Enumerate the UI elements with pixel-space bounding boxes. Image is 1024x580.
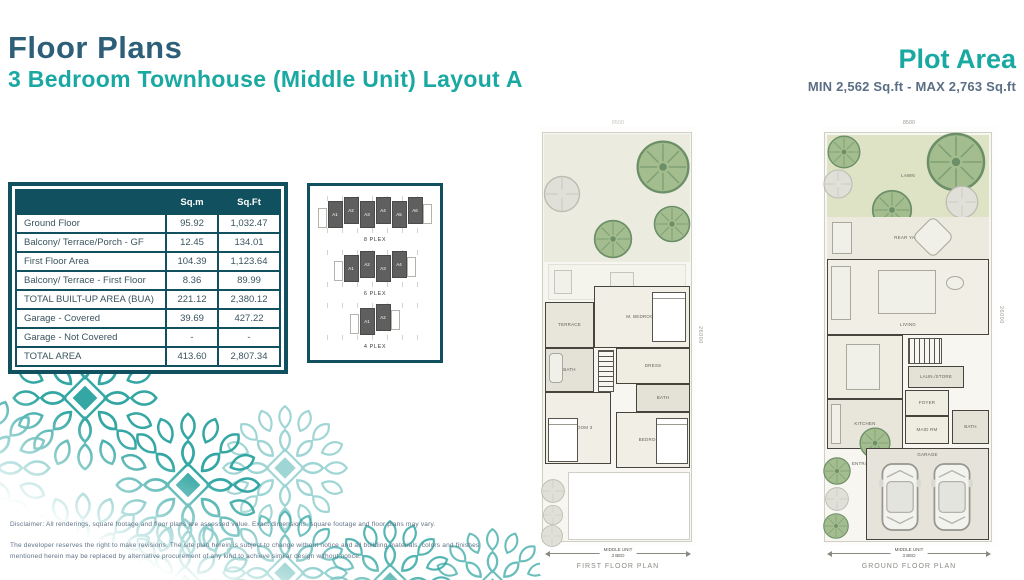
area-label-cell: First Floor Area	[16, 252, 166, 271]
area-value-cell: 104.39	[166, 252, 218, 271]
plex-row: A1A2A3A4A5A6	[318, 201, 432, 228]
area-label-cell: Garage - Covered	[16, 309, 166, 328]
page-title: Floor Plans	[8, 30, 182, 66]
room-terrace: TERRACE	[545, 302, 594, 348]
plot-area-range: MIN 2,562 Sq.ft - MAX 2,763 Sq.ft	[808, 79, 1016, 94]
plex-unit-cell: A1	[344, 255, 359, 282]
area-value-cell: 1,032.47	[218, 214, 280, 233]
outdoor-sofa-icon	[832, 222, 852, 254]
shrub-icon	[824, 486, 850, 512]
room-label: LAWN	[901, 173, 915, 179]
area-table: Sq.m Sq.Ft Ground Floor95.921,032.47Balc…	[8, 182, 288, 374]
room-maid: MAID RM	[905, 416, 949, 444]
plex-end-unit	[391, 310, 400, 330]
table-row: TOTAL AREA413.602,807.34	[16, 347, 280, 366]
area-label-cell: Ground Floor	[16, 214, 166, 233]
plex-unit-cell: A6	[408, 197, 423, 224]
plex-unit-cell: A2	[376, 304, 391, 331]
area-label-cell: TOTAL BUILT-UP AREA (BUA)	[16, 290, 166, 309]
table-row: Garage - Covered39.69427.22	[16, 309, 280, 328]
area-value-cell: 427.22	[218, 309, 280, 328]
area-label-cell: Balcony/ Terrace - First Floor	[16, 271, 166, 290]
plex-gridline	[327, 282, 423, 287]
shrub-icon	[542, 504, 564, 526]
side-table-icon	[946, 276, 964, 290]
plex-unit-cell: A2	[344, 197, 359, 224]
area-label-cell: Balcony/ Terrace/Porch - GF	[16, 233, 166, 252]
area-table-header-sqm: Sq.m	[166, 190, 218, 214]
area-value-cell: 221.12	[166, 290, 218, 309]
room-label: GARAGE	[917, 452, 937, 458]
area-table-header-empty	[16, 190, 166, 214]
area-value-cell: 12.45	[166, 233, 218, 252]
ground-floor-height-dim: 26000	[998, 306, 1004, 324]
bed-icon	[652, 292, 686, 342]
area-value-cell: 8.36	[166, 271, 218, 290]
first-floor-dim-line: MIDDLE UNIT 3 BED	[546, 553, 690, 554]
room-bath2: BATH	[636, 384, 690, 412]
tree-icon	[634, 138, 692, 196]
stairs-icon	[598, 350, 614, 392]
table-row: TOTAL BUILT-UP AREA (BUA)221.122,380.12	[16, 290, 280, 309]
shrub-icon	[822, 456, 852, 486]
first-floor-canvas: TERRACE M. BEDROOM BATH DRESS BATH BEDRO…	[540, 126, 696, 546]
plex-gridline	[327, 335, 423, 340]
area-value-cell: 95.92	[166, 214, 218, 233]
plex-group-4: A1A2 4 PLEX	[327, 303, 423, 350]
tree-icon	[592, 218, 634, 260]
plex-unit-cell: A3	[376, 255, 391, 282]
plex-end-unit	[334, 261, 343, 281]
area-table-header-row: Sq.m Sq.Ft	[16, 190, 280, 214]
plex-unit-cell: A3	[360, 201, 375, 228]
shrub-icon	[540, 478, 566, 504]
table-row: First Floor Area104.391,123.64	[16, 252, 280, 271]
tree-gray-icon	[944, 184, 980, 220]
sofa-icon	[831, 266, 851, 320]
plex-unit-cell: A1	[360, 308, 375, 335]
plex-label-4: 4 PLEX	[364, 344, 386, 350]
tree-icon	[652, 204, 692, 244]
plex-row: A1A2	[350, 308, 400, 335]
plex-unit-cell: A4	[392, 251, 407, 278]
plex-gridline	[327, 228, 423, 233]
area-value-cell: 134.01	[218, 233, 280, 252]
plex-group-8: A1A2A3A4A5A6 8 PLEX	[318, 196, 432, 243]
first-floor-plan-name: FIRST FLOOR PLAN	[540, 563, 696, 570]
area-label-cell: Garage - Not Covered	[16, 328, 166, 347]
disclaimer-line2: The developer reserves the right to make…	[10, 542, 530, 549]
dining-table-icon	[846, 344, 880, 390]
first-floor-plan: 8500 TERRACE M. BEDROOM BATH	[540, 120, 696, 575]
bed-icon	[548, 418, 578, 462]
shrub-icon	[540, 524, 564, 548]
kitchen-counter-icon	[831, 404, 841, 444]
room-label: MAID RM	[917, 427, 938, 433]
plex-units: A1A2A3A4	[343, 255, 407, 282]
furniture	[554, 270, 572, 294]
page-subtitle: 3 Bedroom Townhouse (Middle Unit) Layout…	[8, 66, 523, 93]
ground-floor-plan-name: GROUND FLOOR PLAN	[822, 563, 996, 570]
shrub-icon	[822, 512, 850, 540]
area-value-cell: -	[166, 328, 218, 347]
unit-caption: MIDDLE UNIT 3 BED	[891, 547, 928, 560]
table-row: Balcony/ Terrace/Porch - GF12.45134.01	[16, 233, 280, 252]
plex-group-6: A1A2A3A4 6 PLEX	[327, 250, 423, 297]
bed-label: 3 BED	[895, 553, 924, 559]
room-laundry: LAUN./STORE	[908, 366, 964, 388]
room-dress: DRESS	[616, 348, 690, 384]
ground-floor-dim-line: MIDDLE UNIT 3 BED	[828, 553, 990, 554]
plex-row: A1A2A3A4	[334, 255, 416, 282]
plex-unit-cell: A4	[376, 197, 391, 224]
area-value-cell: 413.60	[166, 347, 218, 366]
ground-floor-canvas: LAWN REAR YARD LIVING DINING	[822, 126, 996, 546]
bathtub-icon	[549, 353, 563, 383]
room-label: DRESS	[645, 363, 662, 369]
plex-end-unit	[350, 314, 359, 334]
tree-gray-icon	[542, 174, 582, 214]
room-label: BATH	[657, 395, 669, 401]
tree-icon	[826, 134, 862, 170]
plex-unit-cell: A5	[392, 201, 407, 228]
area-value-cell: 89.99	[218, 271, 280, 290]
plex-diagram-box: A1A2A3A4A5A6 8 PLEX A1A2A3A4 6 PLEX A1A2	[307, 183, 443, 363]
disclaimer-line3: mentioned herein may be replaced by alte…	[10, 553, 530, 560]
room-bath: BATH	[952, 410, 989, 444]
disclaimer-line1: Disclaimer: All renderings, square foota…	[10, 521, 530, 528]
plex-end-unit	[318, 208, 327, 228]
room-label: FOYER	[919, 400, 936, 406]
room-label: LIVING	[900, 322, 916, 328]
plex-unit-cell: A2	[360, 251, 375, 278]
plex-end-unit	[423, 204, 432, 224]
room-label: BATH	[964, 424, 976, 430]
table-row: Ground Floor95.921,032.47	[16, 214, 280, 233]
first-floor-height-dim: 26000	[697, 326, 703, 344]
open-court	[568, 472, 690, 540]
bed-label: 3 BED	[604, 553, 633, 559]
tree-gray-icon	[822, 168, 854, 200]
plex-unit-cell: A1	[328, 201, 343, 228]
stairs-icon	[908, 338, 942, 364]
sofa-group-icon	[878, 270, 936, 314]
area-value-cell: 1,123.64	[218, 252, 280, 271]
table-row: Garage - Not Covered--	[16, 328, 280, 347]
bed-icon	[656, 418, 688, 464]
plex-label-8: 8 PLEX	[364, 237, 386, 243]
car-icon	[878, 458, 922, 536]
area-value-cell: 39.69	[166, 309, 218, 328]
plex-label-6: 6 PLEX	[364, 291, 386, 297]
table-row: Balcony/ Terrace - First Floor8.3689.99	[16, 271, 280, 290]
plex-units: A1A2A3A4A5A6	[327, 201, 423, 228]
plex-end-unit	[407, 257, 416, 277]
room-label: BATH	[563, 367, 575, 373]
area-label-cell: TOTAL AREA	[16, 347, 166, 366]
room-label: LAUN./STORE	[920, 374, 952, 380]
unit-caption: MIDDLE UNIT 3 BED	[600, 547, 637, 560]
plex-units: A1A2	[359, 308, 391, 335]
area-table-header-sqft: Sq.Ft	[218, 190, 280, 214]
area-value-cell: 2,380.12	[218, 290, 280, 309]
area-value-cell: -	[218, 328, 280, 347]
area-value-cell: 2,807.34	[218, 347, 280, 366]
room-foyer: FOYER	[905, 390, 949, 416]
car-icon	[930, 458, 974, 536]
room-label: TERRACE	[558, 322, 581, 328]
brochure-page: Floor Plans 3 Bedroom Townhouse (Middle …	[0, 0, 1024, 580]
ground-floor-plan: 8500 LAWN REAR YARD LIVING	[822, 120, 996, 575]
plot-area-label: Plot Area	[898, 44, 1016, 75]
